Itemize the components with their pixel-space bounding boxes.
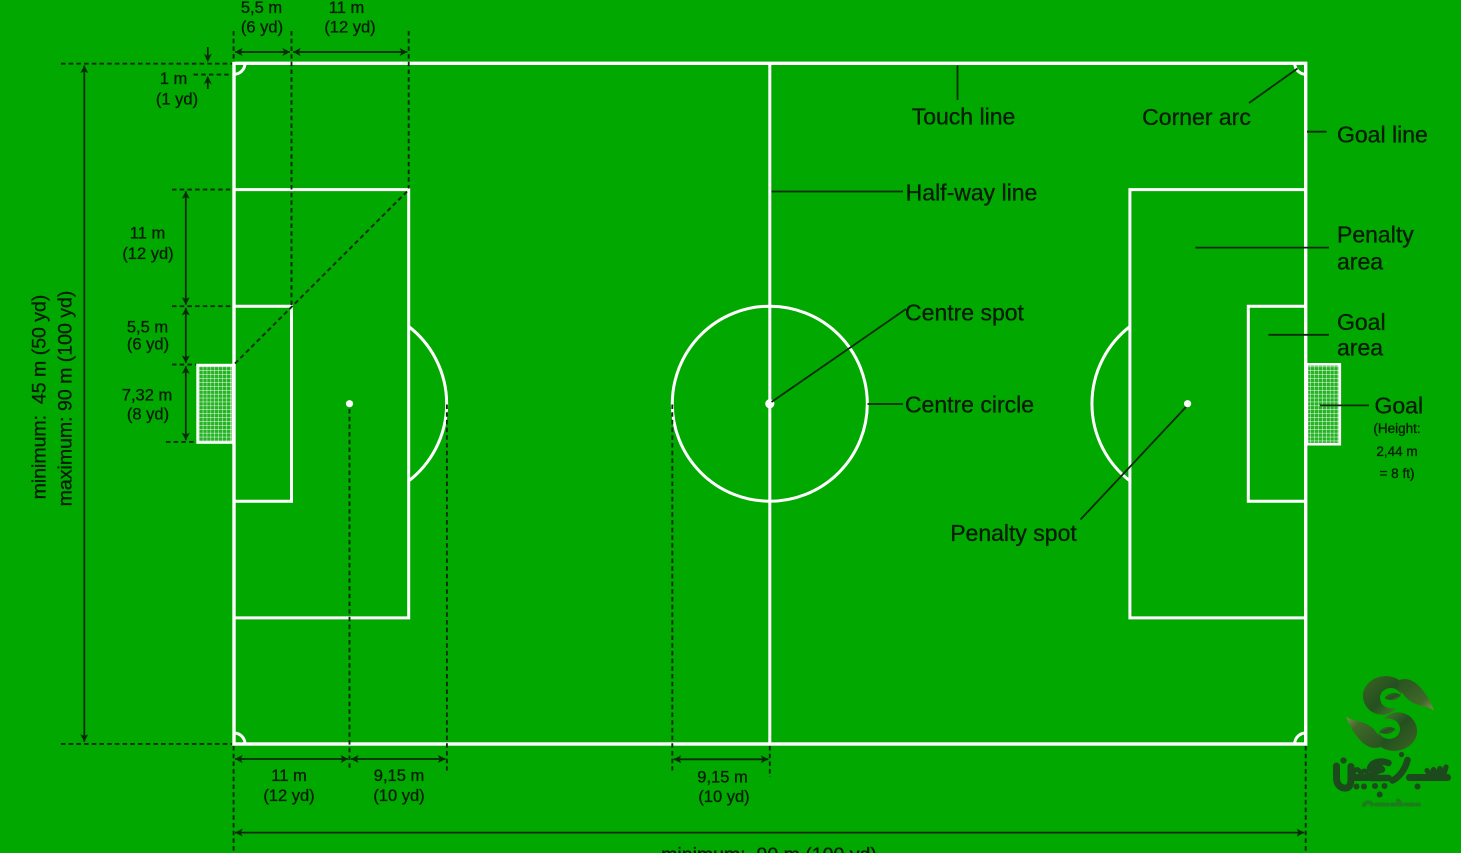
svg-text:minimum: 90 m (100 yd): minimum: 90 m (100 yd) — [661, 844, 877, 853]
svg-text:Goal: Goal — [1375, 393, 1424, 419]
svg-text:Penalty: Penalty — [1337, 222, 1414, 248]
svg-text:11 m: 11 m — [130, 225, 165, 243]
svg-text:9,15 m: 9,15 m — [697, 769, 747, 787]
svg-text:Touch line: Touch line — [912, 104, 1016, 130]
svg-text:maximum: 90 m (100 yd): maximum: 90 m (100 yd) — [55, 291, 77, 507]
svg-text:2,44 m: 2,44 m — [1376, 444, 1417, 459]
svg-text:(12 yd): (12 yd) — [324, 19, 375, 37]
svg-text:11 m: 11 m — [271, 767, 306, 785]
svg-text:5,5 m: 5,5 m — [127, 319, 168, 337]
svg-text:7,32 m: 7,32 m — [122, 387, 172, 405]
svg-text:area: area — [1337, 335, 1383, 361]
svg-text:(6 yd): (6 yd) — [241, 19, 283, 37]
svg-text:area: area — [1337, 249, 1383, 275]
svg-text:Goal line: Goal line — [1337, 122, 1428, 148]
svg-text:(1 yd): (1 yd) — [156, 91, 198, 109]
svg-text:(6 yd): (6 yd) — [127, 336, 169, 354]
svg-text:minimum: 45 m (50 yd): minimum: 45 m (50 yd) — [29, 295, 51, 500]
svg-text:Centre spot: Centre spot — [905, 300, 1025, 326]
svg-text:Penalty spot: Penalty spot — [950, 520, 1077, 546]
svg-text:5,5 m: 5,5 m — [241, 0, 282, 17]
svg-text:Centre circle: Centre circle — [905, 392, 1034, 418]
svg-text:9,15 m: 9,15 m — [374, 767, 424, 785]
svg-text:(8 yd): (8 yd) — [127, 406, 169, 424]
svg-text:(10 yd): (10 yd) — [698, 788, 749, 806]
svg-text:Corner arc: Corner arc — [1142, 104, 1251, 130]
svg-text:(10 yd): (10 yd) — [373, 787, 424, 805]
svg-text:Half-way line: Half-way line — [906, 180, 1038, 206]
svg-text:(12 yd): (12 yd) — [263, 787, 314, 805]
svg-text:1 m: 1 m — [160, 70, 188, 88]
svg-text:(Height:: (Height: — [1373, 421, 1420, 436]
svg-text:11 m: 11 m — [329, 0, 364, 17]
svg-text:= 8 ft): = 8 ft) — [1380, 466, 1415, 481]
svg-text:(12 yd): (12 yd) — [122, 245, 173, 263]
svg-text:Goal: Goal — [1337, 309, 1386, 335]
